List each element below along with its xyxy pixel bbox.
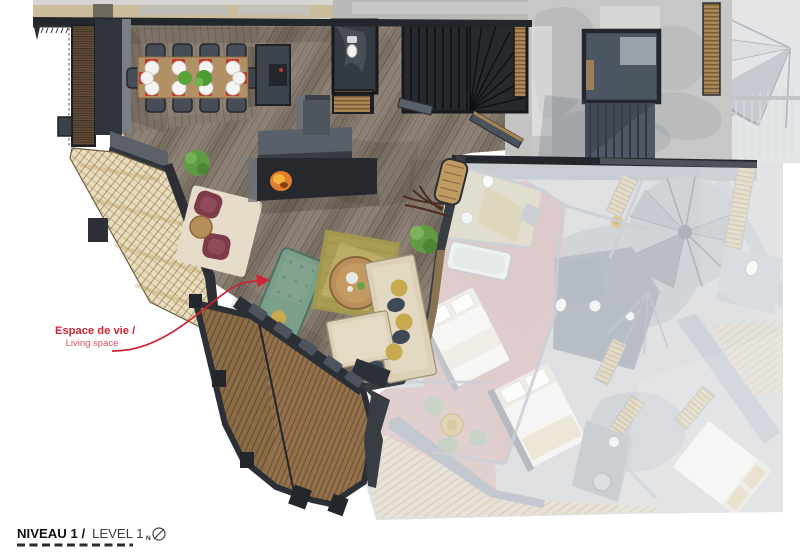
svg-text:N: N xyxy=(146,535,151,542)
svg-text:Living space: Living space xyxy=(66,338,119,349)
svg-text:Espace de vie /: Espace de vie / xyxy=(55,325,135,337)
svg-text:LEVEL 1: LEVEL 1 xyxy=(92,526,144,541)
svg-text:NIVEAU 1 /: NIVEAU 1 / xyxy=(17,526,85,541)
